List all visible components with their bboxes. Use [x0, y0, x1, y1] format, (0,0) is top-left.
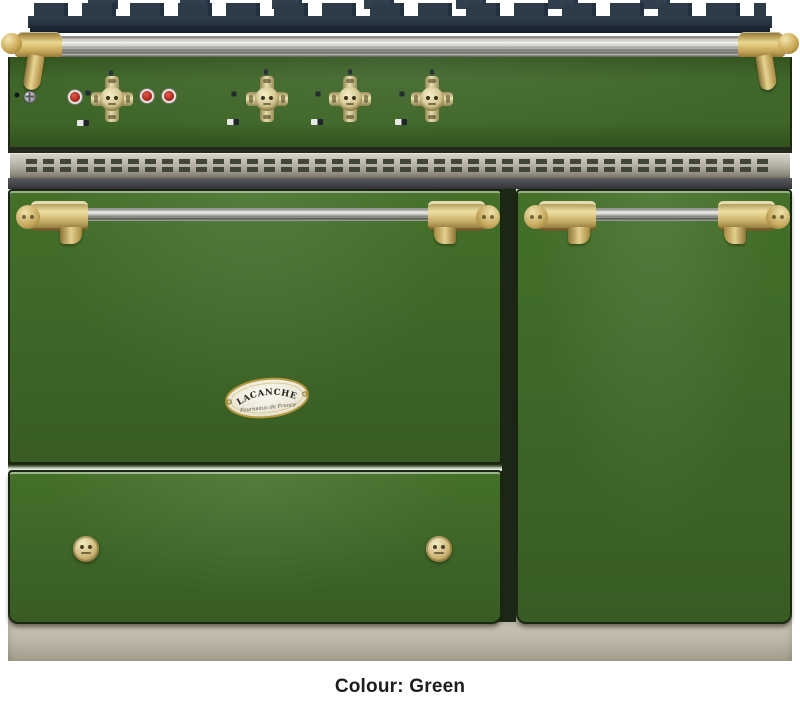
top-dot-icon — [348, 70, 352, 75]
towel-rail — [14, 36, 786, 57]
drawer-knob — [426, 536, 452, 562]
glyph-icon — [227, 119, 239, 125]
oven-door-handle — [64, 208, 457, 221]
glyph-icon — [311, 119, 323, 125]
handle-mount-disc — [766, 205, 790, 229]
top-dot-icon — [430, 70, 434, 75]
handle-mount — [418, 198, 500, 244]
red-light-icon — [164, 91, 174, 101]
burner-knob — [246, 76, 288, 122]
brand-badge: LACANCHE Fourneaux de France — [222, 374, 312, 423]
handle-mount-disc — [476, 205, 500, 229]
storage-drawer — [8, 470, 502, 624]
caption: Colour: Green — [0, 676, 800, 698]
product-photo: LACANCHE Fourneaux de France Colour: Gre… — [0, 0, 800, 701]
red-light-icon — [142, 91, 152, 101]
drawer-knob — [73, 536, 99, 562]
burner-knob — [411, 76, 453, 122]
grate-base-shadow — [30, 26, 770, 33]
pan-support-grates — [28, 0, 772, 34]
glyph-icon — [77, 120, 89, 126]
burner-knob — [91, 76, 133, 122]
handle-mount-disc — [524, 205, 548, 229]
handle-mount-foot — [724, 227, 746, 244]
brand-badge-oval: LACANCHE Fourneaux de France — [222, 374, 312, 423]
handle-mount-foot — [434, 227, 456, 244]
burner-knob — [329, 76, 371, 122]
side-tick-icon — [400, 92, 405, 97]
handle-mount-disc — [16, 205, 40, 229]
rail-ball-finial — [1, 33, 22, 54]
right-oven-door — [516, 189, 792, 624]
top-dot-icon — [109, 71, 113, 76]
side-tick-icon — [86, 91, 91, 96]
side-tick-icon — [316, 92, 321, 97]
side-tick-icon — [232, 92, 237, 97]
red-light-icon — [70, 92, 80, 102]
left-oven-door: LACANCHE Fourneaux de France — [8, 189, 502, 464]
top-dot-icon — [264, 70, 268, 75]
vent-lower-trim — [8, 178, 792, 189]
glyph-icon — [395, 119, 407, 125]
handle-mount — [524, 198, 606, 244]
handle-mount — [16, 198, 98, 244]
vent-slots-row — [26, 159, 774, 164]
control-panel — [8, 57, 792, 148]
vent-grille — [10, 153, 790, 178]
rail-ball-finial — [778, 33, 799, 54]
black-dot-icon — [15, 93, 20, 98]
screw-icon — [25, 92, 36, 103]
vent-slots-row — [26, 167, 774, 172]
handle-mount — [708, 198, 790, 244]
handle-mount-foot — [568, 227, 590, 244]
handle-mount-foot — [60, 227, 82, 244]
